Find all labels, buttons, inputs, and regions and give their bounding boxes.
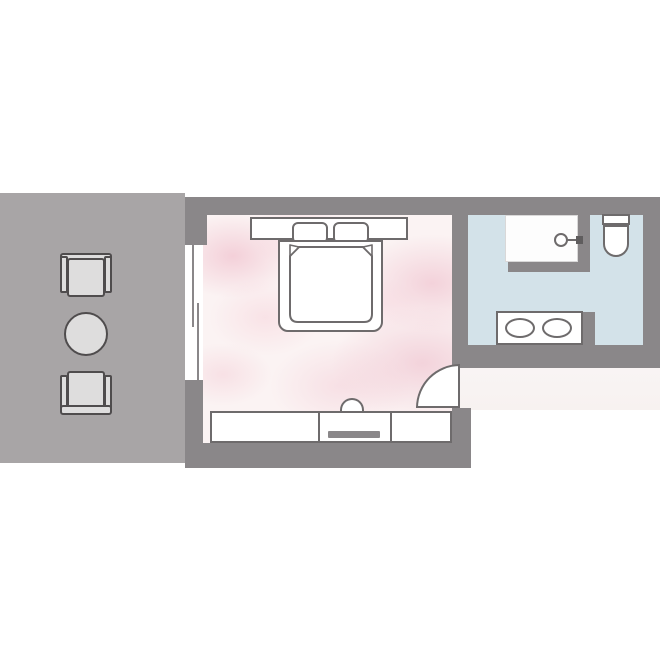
toilet-bowl [603, 225, 629, 257]
sliding-door-panel-inner [197, 303, 199, 382]
shower-head-icon [554, 233, 568, 247]
armchair-top-seat [67, 258, 105, 297]
wall-bedroom-bathroom-divider [452, 197, 468, 368]
wall-bottom [185, 443, 471, 468]
sink-right [542, 318, 572, 338]
sideboard-right-section [390, 411, 452, 443]
sliding-door-panel-outer [192, 245, 194, 327]
wall-vanity-stub [583, 312, 595, 345]
duvet-with-folded-corners [287, 244, 375, 325]
sliding-door-opening [185, 245, 203, 380]
wall-door-stub [452, 408, 471, 444]
round-table [64, 312, 108, 356]
bed-headboard-with-side-tables [250, 217, 408, 240]
entry-corridor-floor [452, 368, 660, 410]
sideboard-left-section [210, 411, 320, 443]
shower-wall-mount [576, 236, 583, 244]
tv-icon [328, 431, 380, 438]
wall-left-top-stub [185, 197, 207, 245]
sink-left [505, 318, 535, 338]
armchair-top-armrest-right [104, 256, 112, 293]
wall-shower-bottom [508, 262, 590, 272]
wall-right [643, 197, 660, 345]
toilet-tank [602, 214, 630, 225]
wall-top [185, 197, 660, 215]
wall-corridor-top [452, 345, 660, 368]
floor-plan [0, 0, 660, 660]
armchair-bottom-backrest [60, 405, 112, 415]
tv-console-section [318, 411, 392, 443]
wall-left-bottom-stub [185, 380, 203, 444]
